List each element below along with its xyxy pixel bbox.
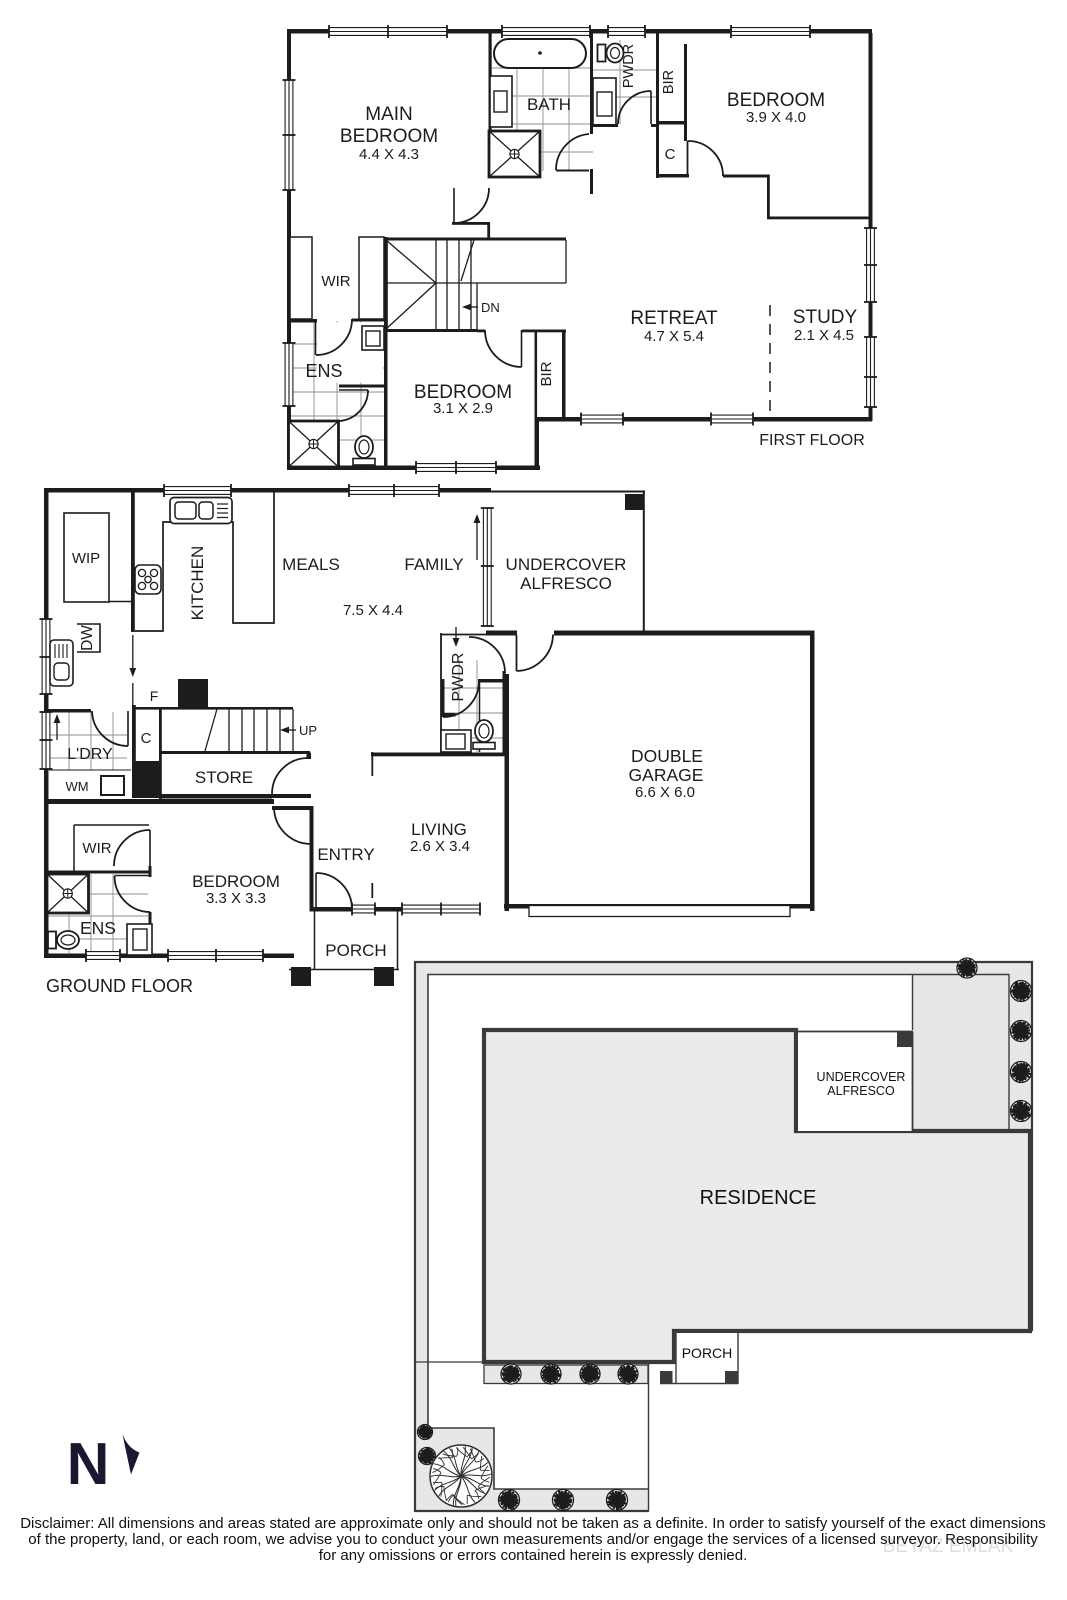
svg-text:PORCH: PORCH xyxy=(682,1345,733,1361)
svg-text:BIR: BIR xyxy=(661,70,677,94)
svg-text:FIRST FLOOR: FIRST FLOOR xyxy=(759,432,865,449)
svg-text:BEDROOM: BEDROOM xyxy=(192,872,280,891)
svg-text:DOUBLE: DOUBLE xyxy=(631,746,703,766)
svg-text:RETREAT: RETREAT xyxy=(630,308,718,329)
svg-text:C: C xyxy=(665,146,676,163)
svg-text:STORE: STORE xyxy=(195,768,253,787)
svg-text:MAIN: MAIN xyxy=(365,104,413,125)
svg-text:F: F xyxy=(150,688,159,704)
svg-text:KITCHEN: KITCHEN xyxy=(188,546,207,621)
svg-text:for any omissions or errors co: for any omissions or errors contained he… xyxy=(319,1547,748,1564)
svg-text:of the property, land, or each: of the property, land, or each room, we … xyxy=(28,1531,1038,1548)
svg-text:UP: UP xyxy=(299,723,317,738)
svg-text:N: N xyxy=(67,1431,110,1497)
svg-text:ENS: ENS xyxy=(305,361,342,381)
svg-text:DN: DN xyxy=(481,300,500,315)
svg-text:LIVING: LIVING xyxy=(411,820,467,839)
svg-text:UNDERCOVER: UNDERCOVER xyxy=(817,1070,906,1084)
svg-text:4.4 X 4.3: 4.4 X 4.3 xyxy=(359,146,419,163)
svg-text:4.7 X 5.4: 4.7 X 5.4 xyxy=(644,328,704,345)
svg-text:7.5 X 4.4: 7.5 X 4.4 xyxy=(343,602,403,619)
svg-text:6.6 X 6.0: 6.6 X 6.0 xyxy=(635,784,695,801)
svg-text:ALFRESCO: ALFRESCO xyxy=(827,1084,895,1098)
svg-text:BEDROOM: BEDROOM xyxy=(340,126,438,147)
svg-text:PORCH: PORCH xyxy=(325,941,386,960)
svg-text:PWDR: PWDR xyxy=(621,44,637,88)
svg-text:BEDROOM: BEDROOM xyxy=(727,90,825,111)
svg-text:DW: DW xyxy=(79,625,96,651)
svg-text:UNDERCOVER: UNDERCOVER xyxy=(506,555,627,574)
svg-text:GARAGE: GARAGE xyxy=(629,765,704,785)
svg-text:WIP: WIP xyxy=(72,550,100,567)
svg-text:BATH: BATH xyxy=(527,95,571,114)
svg-text:3.9 X 4.0: 3.9 X 4.0 xyxy=(746,109,806,126)
svg-text:STUDY: STUDY xyxy=(793,307,858,328)
svg-text:ALFRESCO: ALFRESCO xyxy=(520,574,612,593)
svg-text:2.1 X 4.5: 2.1 X 4.5 xyxy=(794,327,854,344)
svg-text:Disclaimer: All dimensions and: Disclaimer: All dimensions and areas sta… xyxy=(20,1515,1046,1532)
svg-text:3.1 X 2.9: 3.1 X 2.9 xyxy=(433,400,493,417)
svg-text:3.3 X 3.3: 3.3 X 3.3 xyxy=(206,890,266,907)
svg-text:2.6 X 3.4: 2.6 X 3.4 xyxy=(410,838,470,855)
svg-text:ENS: ENS xyxy=(80,918,116,938)
svg-text:L'DRY: L'DRY xyxy=(67,746,113,763)
svg-text:RESIDENCE: RESIDENCE xyxy=(700,1187,817,1209)
svg-text:WIR: WIR xyxy=(321,273,350,290)
svg-text:WM: WM xyxy=(65,779,88,794)
svg-text:C: C xyxy=(141,730,152,747)
svg-text:WIR: WIR xyxy=(82,840,111,857)
svg-text:FAMILY: FAMILY xyxy=(404,555,463,574)
svg-text:ENTRY: ENTRY xyxy=(317,845,374,864)
svg-text:BIR: BIR xyxy=(538,361,555,386)
svg-text:MEALS: MEALS xyxy=(282,555,340,574)
svg-text:PWDR: PWDR xyxy=(450,653,467,702)
svg-text:GROUND FLOOR: GROUND FLOOR xyxy=(46,976,193,996)
